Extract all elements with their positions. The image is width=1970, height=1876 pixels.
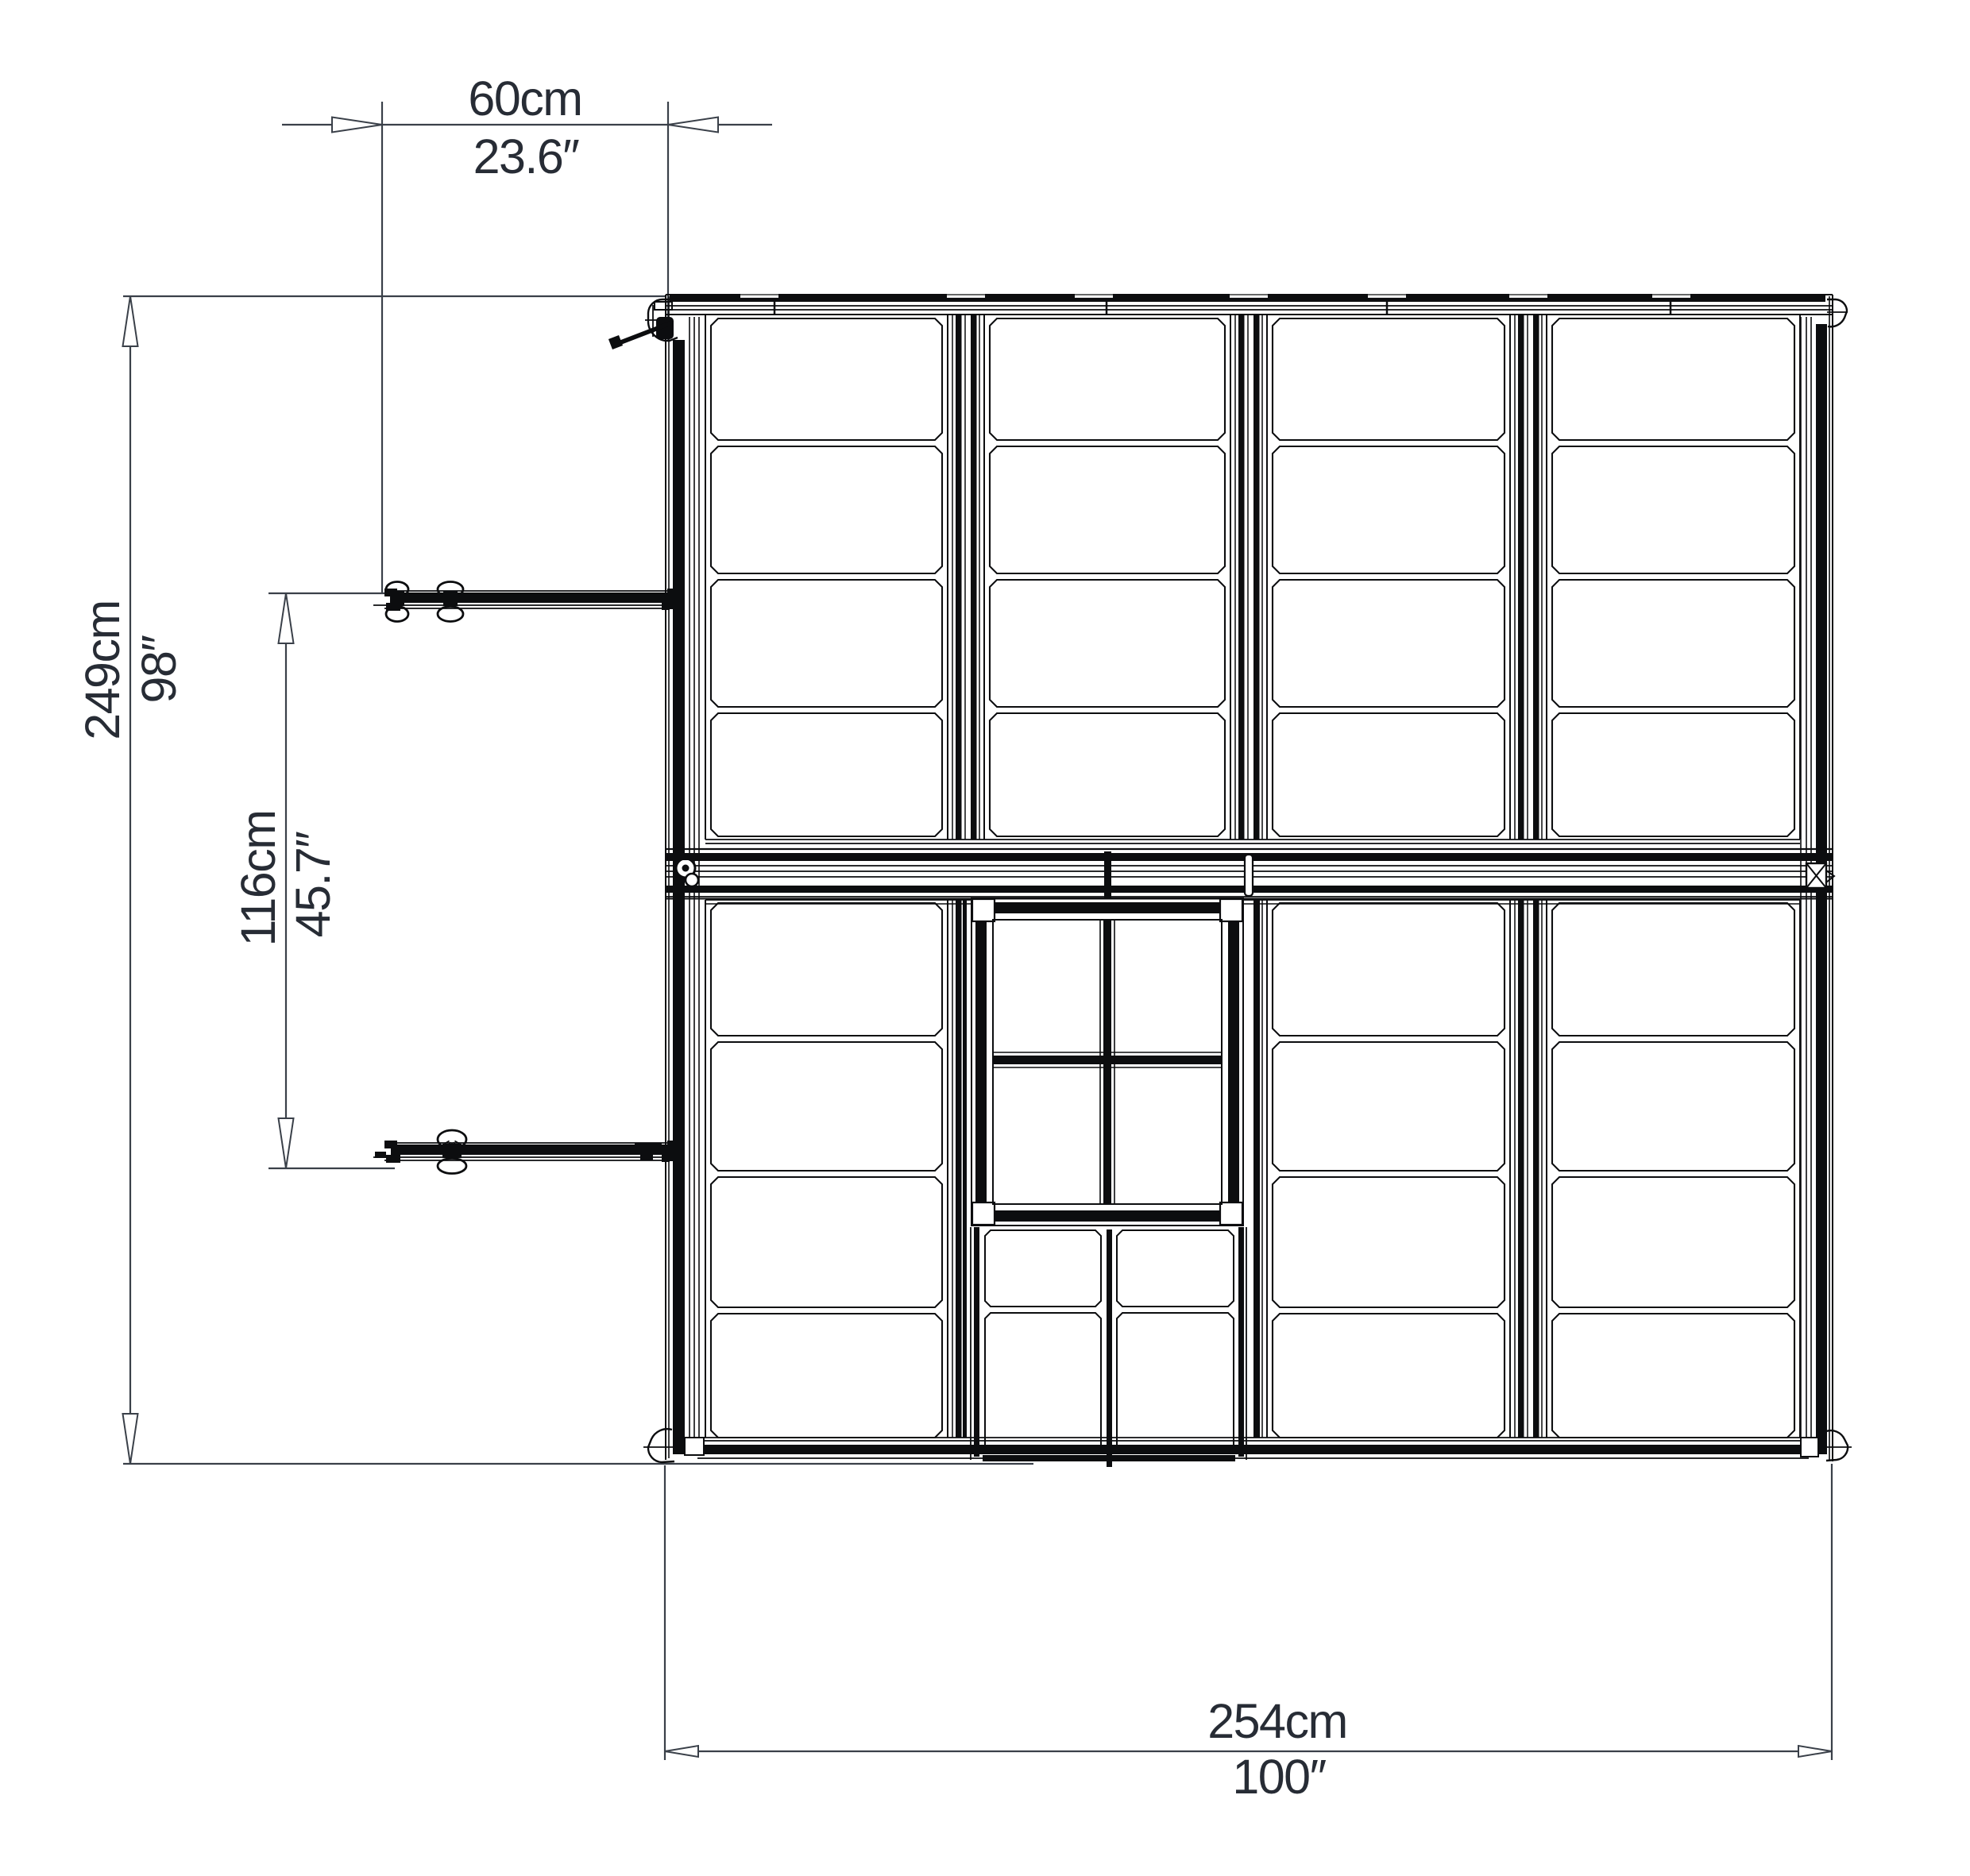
svg-text:60cm: 60cm xyxy=(468,71,581,125)
svg-text:45.7″: 45.7″ xyxy=(286,832,340,938)
svg-text:254cm: 254cm xyxy=(1207,1694,1347,1748)
svg-text:116cm: 116cm xyxy=(231,810,285,946)
svg-text:100″: 100″ xyxy=(1232,1750,1326,1804)
svg-text:23.6″: 23.6″ xyxy=(473,129,580,183)
svg-text:249cm: 249cm xyxy=(75,600,129,740)
svg-text:98″: 98″ xyxy=(132,635,186,704)
